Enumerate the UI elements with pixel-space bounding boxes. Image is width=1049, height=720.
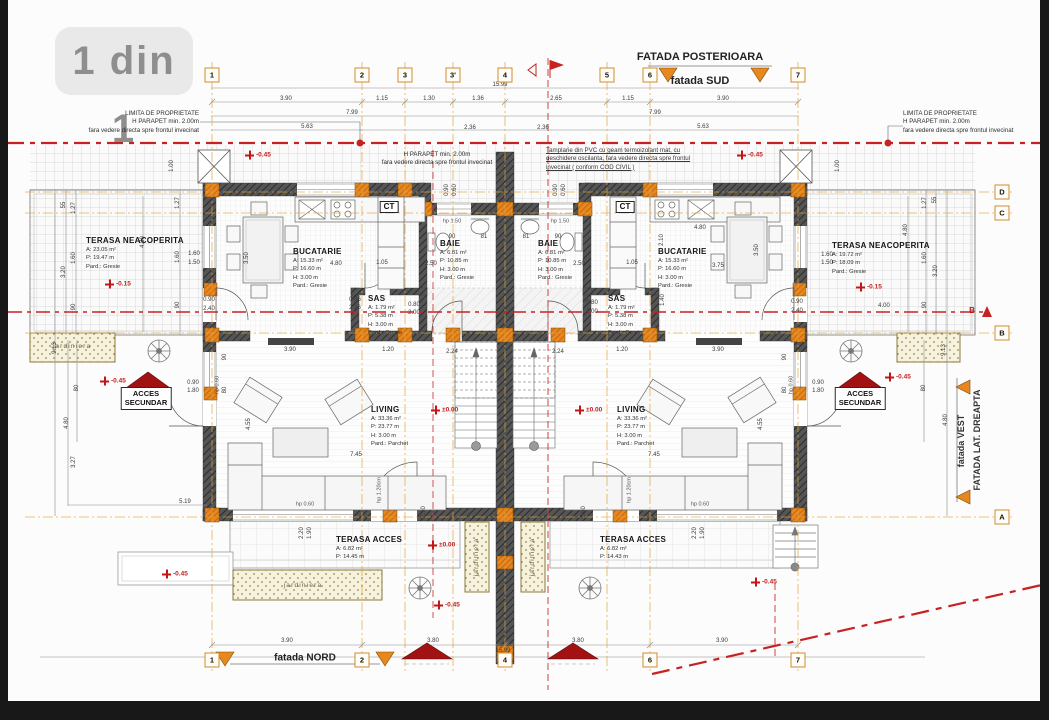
floor-plan-canvas xyxy=(0,0,1049,720)
plan-viewer: 1 din 1 FATADA POSTERIOARA fatada SUD fa… xyxy=(0,0,1049,720)
side-steps xyxy=(773,525,818,571)
